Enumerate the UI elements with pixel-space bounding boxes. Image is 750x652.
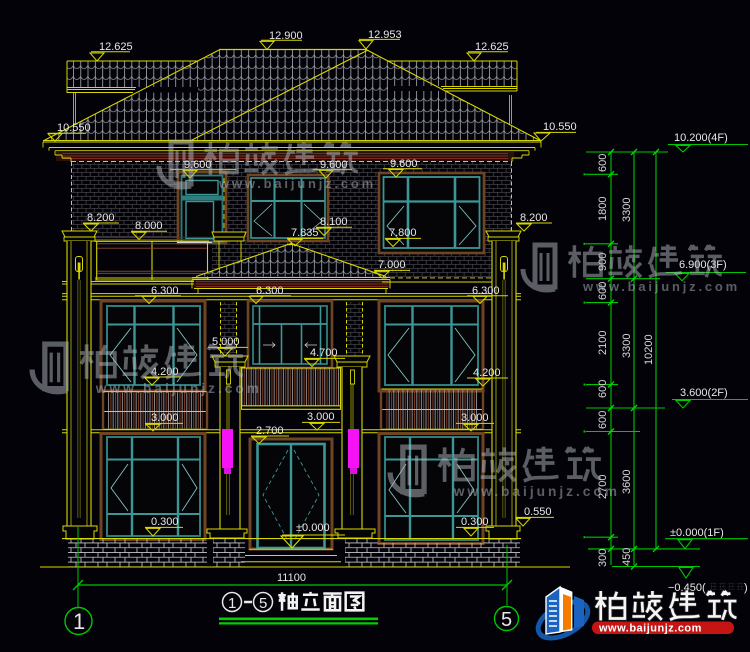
svg-text:4.700: 4.700	[310, 347, 338, 359]
svg-text:1800: 1800	[597, 197, 609, 221]
svg-text:450: 450	[621, 548, 633, 566]
svg-text:12.625: 12.625	[99, 41, 133, 53]
svg-text:10200: 10200	[643, 334, 655, 365]
svg-text:6.900(3F): 6.900(3F)	[679, 259, 727, 271]
svg-text:1: 1	[228, 595, 236, 612]
svg-text:2.700: 2.700	[256, 425, 284, 437]
svg-text:11100: 11100	[277, 572, 306, 584]
svg-text:5: 5	[501, 609, 512, 631]
svg-text:±0.000: ±0.000	[296, 522, 330, 534]
svg-text:2100: 2100	[597, 331, 609, 355]
svg-text:600: 600	[597, 154, 609, 172]
svg-text:6.300: 6.300	[472, 285, 500, 297]
svg-text:8.200: 8.200	[520, 212, 548, 224]
svg-text:3.000: 3.000	[461, 412, 489, 424]
svg-text:3300: 3300	[621, 334, 633, 358]
svg-text:6.300: 6.300	[256, 285, 284, 297]
svg-text:3300: 3300	[621, 198, 633, 222]
svg-text:0.550: 0.550	[524, 506, 552, 518]
svg-text:4.200: 4.200	[473, 367, 501, 379]
svg-text:6.300: 6.300	[151, 285, 179, 297]
svg-text:7.800: 7.800	[389, 227, 417, 239]
svg-text:9.600: 9.600	[390, 158, 418, 170]
svg-text:10.200(4F): 10.200(4F)	[674, 132, 728, 144]
svg-text:8.000: 8.000	[135, 220, 163, 232]
svg-text:900: 900	[597, 253, 609, 271]
svg-text:0.300: 0.300	[151, 516, 179, 528]
svg-text:1: 1	[73, 609, 85, 634]
svg-text:3600: 3600	[621, 470, 633, 494]
svg-text:600: 600	[597, 380, 609, 398]
svg-text:5: 5	[259, 595, 267, 612]
svg-text:10.550: 10.550	[543, 121, 577, 133]
svg-text:300: 300	[597, 549, 609, 567]
svg-text:www.baijunjz.com: www.baijunjz.com	[598, 623, 702, 635]
svg-text:±0.000(1F): ±0.000(1F)	[670, 527, 724, 539]
svg-text:7.000: 7.000	[378, 259, 406, 271]
svg-text:8.100: 8.100	[320, 216, 348, 228]
svg-text:7.835: 7.835	[291, 227, 319, 239]
svg-text:12.625: 12.625	[475, 41, 509, 53]
svg-text:600: 600	[597, 411, 609, 429]
svg-text:3.000: 3.000	[307, 411, 335, 423]
svg-text:3.600(2F): 3.600(2F)	[680, 387, 728, 399]
svg-text:10.550: 10.550	[57, 122, 91, 134]
svg-text:3.000: 3.000	[151, 412, 179, 424]
svg-text:8.200: 8.200	[87, 212, 115, 224]
svg-text:0.300: 0.300	[461, 516, 489, 528]
svg-text:): )	[744, 582, 748, 594]
